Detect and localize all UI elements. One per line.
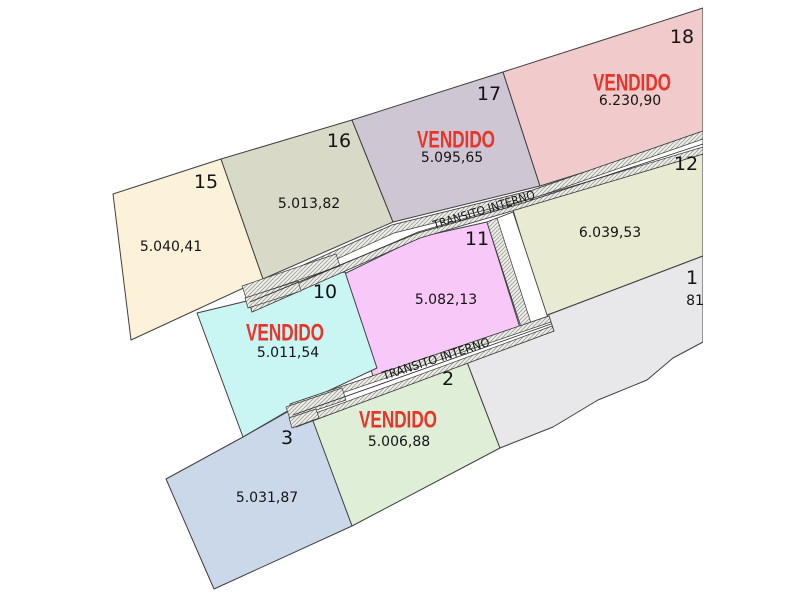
lot-16-number: 16	[327, 130, 351, 152]
lot-11-area: 5.082,13	[415, 292, 477, 308]
lot-11-number: 11	[465, 228, 489, 250]
image-edge-mask	[703, 0, 800, 600]
lot-10-sold-label: VENDIDO	[246, 320, 324, 347]
lot-17-area: 5.095,65	[421, 150, 483, 166]
lot-12-number: 12	[674, 153, 698, 175]
lot-12-area: 6.039,53	[579, 225, 641, 241]
lot-15-area: 5.040,41	[140, 239, 202, 255]
subdivision-plan: TRANSITO INTERNOTRANSITO INTERNO155.040,…	[0, 0, 800, 600]
lot-1-area: 81	[686, 293, 704, 309]
lot-16-area: 5.013,82	[278, 196, 340, 212]
lot-10-area: 5.011,54	[257, 345, 319, 361]
lot-10-number: 10	[313, 281, 337, 303]
lot-2-area: 5.006,88	[368, 434, 430, 450]
lot-17-number: 17	[477, 83, 501, 105]
lot-2-number: 2	[442, 368, 454, 390]
lot-1-number: 1	[686, 267, 698, 289]
lot-18-area: 6.230,90	[599, 93, 661, 109]
lot-3-area: 5.031,87	[236, 490, 298, 506]
lot-18-number: 18	[670, 26, 694, 48]
lot-3-number: 3	[281, 427, 293, 449]
subdivision-plan-viewer: TRANSITO INTERNOTRANSITO INTERNO155.040,…	[0, 0, 800, 600]
lot-15-number: 15	[194, 171, 218, 193]
lot-2-sold-label: VENDIDO	[359, 407, 437, 434]
